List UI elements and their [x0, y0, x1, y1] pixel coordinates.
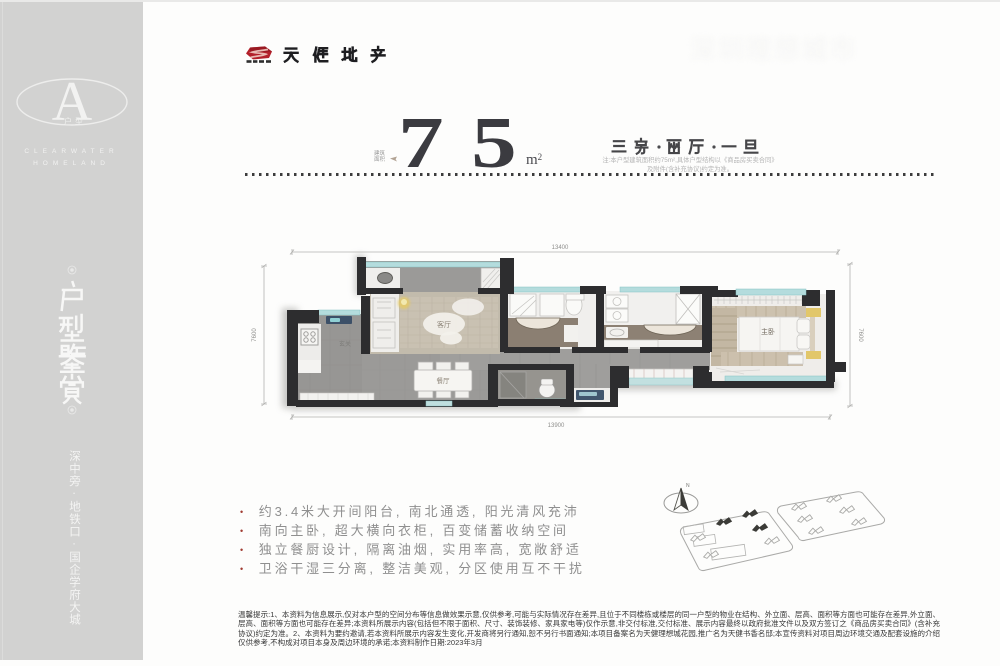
svg-text:7600: 7600 [857, 328, 863, 342]
svg-text:13900: 13900 [548, 423, 565, 429]
svg-text:N: N [686, 483, 690, 489]
svg-text:客厅: 客厅 [437, 320, 451, 329]
svg-text:7600: 7600 [252, 328, 258, 342]
svg-text:餐厅: 餐厅 [437, 376, 451, 385]
svg-text:玄关: 玄关 [339, 340, 351, 348]
svg-text:户型: 户型 [64, 116, 86, 126]
svg-text:13400: 13400 [552, 245, 569, 251]
svg-text:主卧: 主卧 [761, 327, 775, 336]
